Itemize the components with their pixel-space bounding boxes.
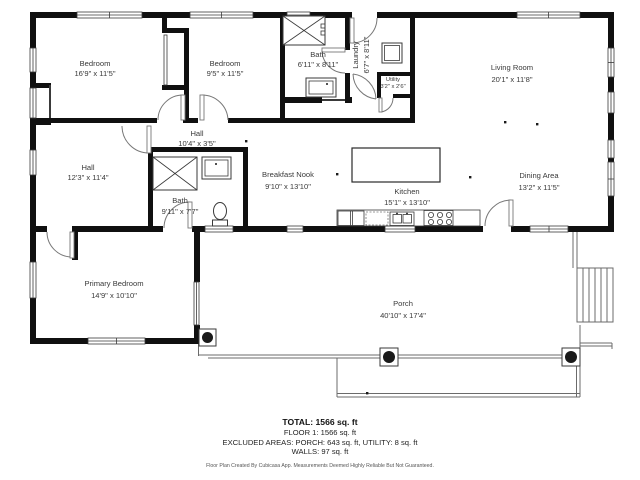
outer-walls-shape [30, 338, 88, 344]
interior-walls-shape [162, 28, 189, 33]
outer-walls-shape [233, 226, 287, 232]
fixture-dots-shape [504, 121, 506, 123]
room-dims-bath-main: 9'11" x 7'7" [162, 207, 199, 216]
door-porch-shape [509, 200, 513, 226]
interior-walls-shape [36, 83, 51, 88]
fixture-dots-shape [336, 173, 338, 175]
window [190, 12, 253, 18]
window [517, 12, 580, 18]
window [287, 226, 303, 232]
outer-walls-shape [303, 226, 385, 232]
outer-walls-shape [145, 338, 200, 344]
summary-disclaimer: Floor Plan Created By Cubicasa App. Meas… [206, 463, 434, 469]
interior-walls-shape [243, 147, 248, 226]
outer-walls-shape [72, 226, 163, 232]
fixture-dots-shape [469, 176, 471, 178]
porch-post-shape [565, 351, 577, 363]
room-dims-hall-corridor: 10'4" x 3'5" [178, 139, 216, 148]
kitchen-island-shape [352, 148, 440, 182]
interior-walls-shape [184, 33, 189, 88]
door-laundry-exterior-shape [350, 18, 354, 43]
summary-floor: FLOOR 1: 1566 sq. ft [284, 428, 357, 437]
outer-walls-shape [30, 175, 36, 262]
door-bedroom-1-shape [181, 95, 185, 120]
laundry-fixtures [382, 43, 402, 63]
room-dims-hall: 12'3" x 11'4" [67, 173, 108, 182]
window [608, 140, 614, 158]
interior-walls-shape [393, 94, 410, 98]
door-primary-bedroom-shape [70, 232, 74, 258]
room-label-breakfast-nook: Breakfast Nook [262, 170, 314, 179]
interior-walls-shape [36, 118, 157, 123]
window [30, 150, 36, 175]
room-dims-utility: 3'2" x 2'6" [380, 84, 405, 90]
toilet-shape [214, 203, 227, 220]
room-label-bedroom-2: Bedroom [210, 59, 241, 68]
porch-post-shape [202, 332, 213, 343]
sink-vanity-shape [215, 163, 217, 165]
window [194, 282, 199, 325]
outer-walls-shape [608, 12, 614, 48]
sink-vanity-shape [326, 83, 328, 85]
fixture-dots-shape [245, 140, 247, 142]
summary-total: TOTAL: 1566 sq. ft [282, 417, 357, 427]
room-dims-bedroom-1: 16'9" x 11'5" [74, 69, 115, 78]
door-hall-shape [147, 126, 151, 153]
interior-walls-shape [377, 94, 381, 98]
window [30, 262, 36, 298]
outer-walls-shape [608, 113, 614, 140]
room-dims-kitchen: 15'1" x 13'10" [384, 198, 430, 207]
outer-walls-shape [253, 12, 287, 18]
window [608, 48, 614, 77]
outer-walls-shape [30, 12, 77, 18]
kitchen-island [352, 148, 440, 182]
window [530, 226, 568, 232]
room-label-porch: Porch [393, 299, 413, 308]
outer-walls-shape [608, 77, 614, 92]
outer-walls-shape [30, 118, 36, 150]
washer-shape [382, 43, 402, 63]
porch-post [380, 348, 398, 366]
room-label-bedroom-1: Bedroom [80, 59, 111, 68]
room-label-kitchen: Kitchen [394, 187, 419, 196]
outer-walls-shape [30, 12, 36, 48]
shower [283, 16, 325, 45]
room-label-bath-main: Bath [172, 196, 188, 205]
kitchen-sink-shape [406, 213, 408, 215]
outer-walls-shape [30, 298, 36, 344]
outer-walls-shape [30, 226, 47, 232]
room-dims-breakfast-nook: 9'10" x 13'10" [265, 182, 311, 191]
room-dims-primary-bedroom: 14'9" x 10'10" [91, 291, 137, 300]
interior-walls-shape [228, 118, 415, 123]
interior-walls-shape [322, 99, 347, 101]
interior-walls-shape [345, 97, 352, 103]
outer-walls-shape [377, 12, 517, 18]
room-label-hall: Hall [81, 163, 94, 172]
window [608, 162, 614, 196]
washer [382, 43, 402, 63]
porch-post [562, 348, 580, 366]
outer-walls-shape [415, 226, 483, 232]
outer-walls-shape [192, 226, 205, 232]
outer-walls-shape [511, 226, 530, 232]
room-dims-living-room: 20'1" x 11'8" [491, 75, 532, 84]
outer-walls-shape [142, 12, 190, 18]
window [30, 48, 36, 72]
outer-walls-shape [568, 226, 614, 232]
fixture-dots-shape [536, 123, 538, 125]
outer-walls-shape [30, 72, 36, 88]
room-dims-bath-top: 6'11" x 8'11" [298, 60, 339, 69]
interior-walls-shape [280, 97, 322, 103]
outer-walls-shape [194, 232, 200, 282]
window [30, 88, 36, 118]
shower [153, 157, 197, 190]
stairs [577, 268, 613, 322]
interior-walls-shape [410, 18, 415, 123]
summary-excluded: EXCLUDED AREAS: PORCH: 643 sq. ft, UTILI… [223, 438, 419, 447]
room-label-dining-area: Dining Area [519, 171, 559, 180]
interior-walls-shape [345, 73, 350, 97]
sink-vanity [202, 157, 231, 179]
fixture-dots-shape [366, 392, 368, 394]
door-bedroom-2-shape [200, 95, 204, 120]
room-label-laundry: Laundry [351, 41, 360, 69]
kitchen-sink-shape [396, 213, 398, 215]
porch-post [199, 329, 216, 346]
interior-walls-shape [345, 18, 350, 50]
room-dims-porch: 40'10" x 17'4" [380, 311, 426, 320]
summary-walls: WALLS: 97 sq. ft [292, 447, 350, 456]
room-dims-dining-area: 13'2" x 11'5" [518, 183, 559, 192]
door-utility-shape [379, 98, 382, 112]
room-dims-bedroom-2: 9'5" x 11'5" [207, 69, 244, 78]
window [385, 226, 415, 232]
window [608, 92, 614, 113]
room-label-hall-corridor: Hall [190, 129, 203, 138]
toilet-shape [213, 220, 228, 226]
room-label-utility: Utility [386, 77, 400, 83]
interior-walls-shape [49, 85, 51, 123]
interior-walls-shape [377, 72, 410, 76]
outer-walls-shape [608, 158, 614, 162]
toilet [213, 203, 228, 227]
room-label-bath-top: Bath [310, 50, 326, 59]
floor-plan: Bedroom 16'9" x 11'5" Bedroom 9'5" x 11'… [0, 0, 640, 480]
window [205, 226, 233, 232]
window [77, 12, 142, 18]
porch-post-shape [383, 351, 395, 363]
room-label-living-room: Living Room [491, 63, 533, 72]
room-dims-laundry: 6'7" x 8'11" [362, 36, 371, 73]
interior-walls-shape [148, 147, 153, 226]
sink-vanity [306, 78, 336, 97]
window [88, 338, 145, 344]
room-label-primary-bedroom: Primary Bedroom [84, 279, 143, 288]
